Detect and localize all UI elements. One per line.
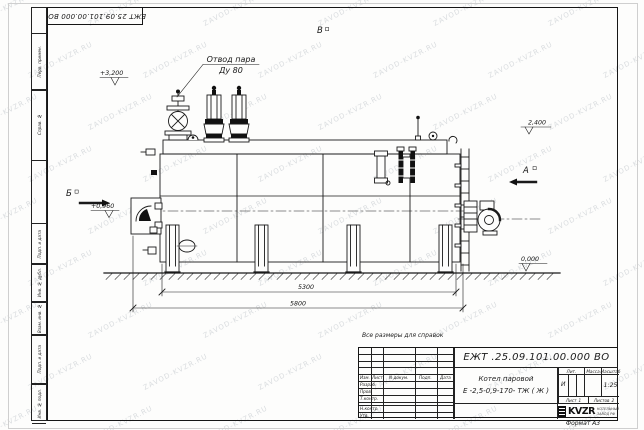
col-list: Лист: [372, 375, 383, 380]
manhole-oval: [177, 240, 197, 252]
steam-outlet-valve: [165, 90, 191, 141]
company-logo-cell: KVZR КОТЕЛЬНЫЙ ЗАВОД РФ: [558, 404, 619, 419]
label-dim-5800: 5800: [290, 301, 306, 308]
reference-note: Все размеры для справок: [362, 332, 443, 339]
dimension-5300: [159, 264, 459, 296]
mass-value-cell: [584, 375, 601, 397]
row-razrab: Разраб.: [360, 382, 376, 387]
format-note: Формат А3: [548, 420, 618, 427]
label-elevation-2400: 2,400: [528, 120, 546, 127]
row-nkontr: Н.контр.: [360, 406, 379, 411]
safety-valves: [204, 86, 249, 142]
row-prov: Пров.: [360, 389, 372, 394]
label-elevation-3200: +3,200: [100, 70, 123, 77]
label-dim-5300: 5300: [298, 284, 314, 291]
sheets-value: 2: [611, 398, 614, 403]
label-steam-outlet-line1: Отвод пара: [207, 55, 256, 64]
ground-line: [104, 273, 560, 280]
label-elevation-0960: +0,960: [91, 203, 114, 210]
product-name-cell: Котел паровой Е -2,5-0,9-170- ТЖ ( Ж ): [454, 368, 558, 403]
scale-value: 1:25: [601, 375, 619, 397]
steam-outlet-leader: [177, 65, 259, 98]
boiler-body: [150, 140, 472, 262]
mass-header: Масса: [584, 368, 601, 375]
company-name: КОТЕЛЬНЫЙ ЗАВОД РФ: [597, 407, 619, 415]
label-elevation-0000: 0,000: [521, 256, 539, 263]
label-view-b: Б: [66, 189, 72, 199]
label-view-v: В: [317, 26, 323, 36]
blower-assembly: [458, 201, 540, 235]
col-ndoc: N докум.: [389, 375, 408, 380]
sheet-value: 1: [578, 398, 581, 403]
col-izm: Изм.: [360, 375, 370, 380]
col-podp: Подп.: [419, 375, 432, 380]
product-name-line2: Е -2,5-0,9-170- ТЖ ( Ж ): [463, 386, 549, 397]
label-view-a: А: [522, 166, 529, 176]
sheets-label: Листов: [594, 398, 610, 403]
lit-value: И: [559, 381, 568, 388]
lit-value-cell: И: [558, 375, 584, 397]
signature-table: Изм. Лист N докум. Подп. Дата Разраб. Пр…: [359, 348, 454, 419]
scale-header: Масштаб: [601, 368, 619, 375]
product-name-line1: Котел паровой: [479, 374, 534, 385]
view-mark-v: [326, 28, 329, 31]
row-tkontr: Т.контр.: [360, 396, 378, 401]
row-utv: Утв.: [360, 413, 369, 418]
sheets-cell: Листов 2: [588, 397, 619, 404]
lit-header: Лит.: [558, 368, 584, 375]
col-data: Дата: [440, 375, 451, 380]
level-gauge: [375, 151, 391, 185]
top-fittings: [188, 116, 457, 143]
title-block: Изм. Лист N докум. Подп. Дата Разраб. Пр…: [358, 347, 618, 418]
product-name-lower-cell: [454, 403, 558, 419]
electrode-column: [396, 147, 418, 183]
document-designation: ЕЖТ .25.09.101.00.000 ВО: [454, 348, 618, 368]
sheet-label: Лист: [566, 398, 577, 403]
kvzr-logo-text: KVZR: [568, 406, 595, 417]
kvzr-logo-icon: [558, 406, 566, 417]
company-line2: ЗАВОД РФ: [597, 412, 619, 416]
sheet-cell: Лист 1: [558, 397, 588, 404]
label-steam-outlet-line2: Ду 80: [218, 66, 243, 75]
drawing-sheet: ZAVOD-KVZR.RUZAVOD-KVZR.RUZAVOD-KVZR.RUZ…: [0, 0, 644, 430]
